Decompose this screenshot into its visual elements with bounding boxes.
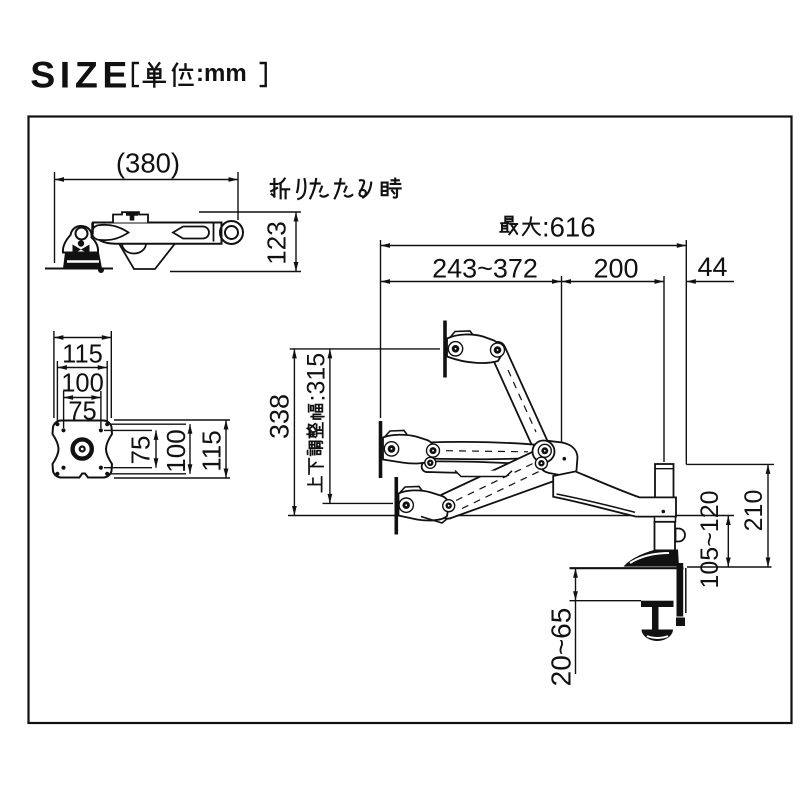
svg-text:100: 100	[161, 429, 191, 472]
svg-text::315: :315	[303, 353, 331, 402]
svg-text:(380): (380)	[116, 148, 180, 179]
svg-text:115: 115	[197, 430, 227, 471]
svg-text:SIZE: SIZE	[30, 54, 132, 96]
svg-text:20~65: 20~65	[546, 608, 577, 687]
svg-text:243~372: 243~372	[432, 254, 538, 284]
svg-text:123: 123	[262, 221, 292, 264]
svg-text:105~120: 105~120	[696, 490, 724, 588]
svg-text:210: 210	[740, 490, 768, 532]
svg-text:200: 200	[593, 254, 638, 284]
svg-text:75: 75	[68, 397, 96, 425]
svg-text:100: 100	[61, 369, 104, 397]
svg-text:75: 75	[126, 436, 156, 465]
svg-text::mm: :mm	[196, 60, 247, 87]
svg-text:44: 44	[697, 252, 727, 282]
svg-text:115: 115	[62, 340, 103, 368]
svg-text:338: 338	[265, 394, 295, 439]
svg-text::616: :616	[542, 212, 596, 243]
